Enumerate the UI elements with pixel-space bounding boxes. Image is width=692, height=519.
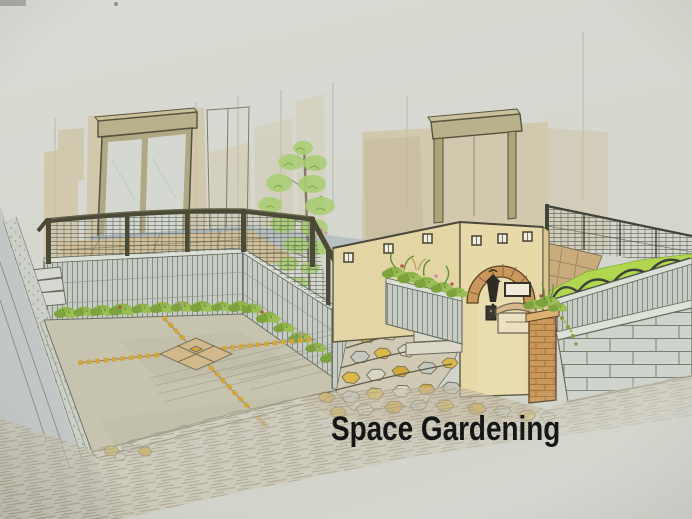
garden-design-rendering: .sy{fill:#dcb84a}.sy2{fill:#d0a73c}.sg{f… xyxy=(0,0,692,519)
watermark-text: Space Gardening xyxy=(331,410,560,449)
